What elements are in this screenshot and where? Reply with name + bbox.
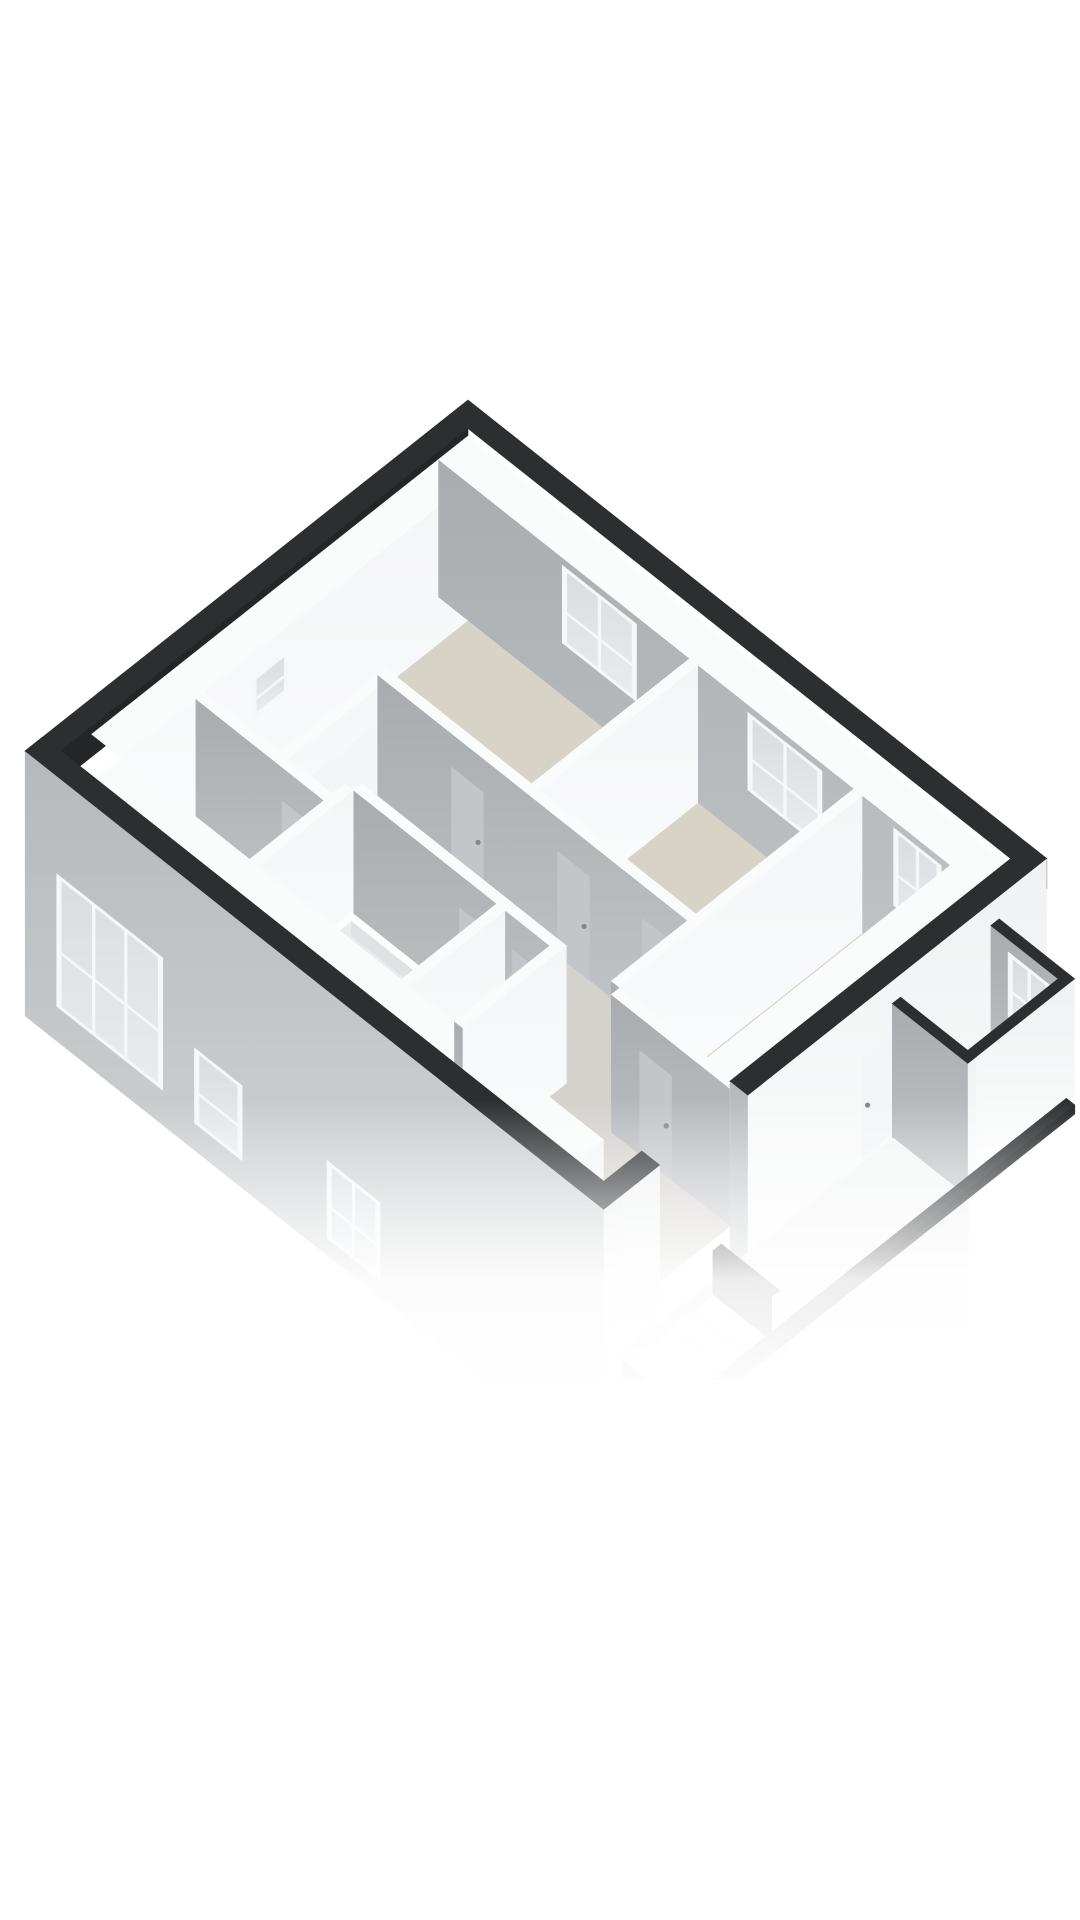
floorplan-viewport — [0, 0, 1080, 1920]
bottom-fade — [0, 1100, 1080, 1400]
bottom-mask — [0, 1380, 1080, 1920]
floorplan-3d-render — [0, 0, 1080, 1920]
